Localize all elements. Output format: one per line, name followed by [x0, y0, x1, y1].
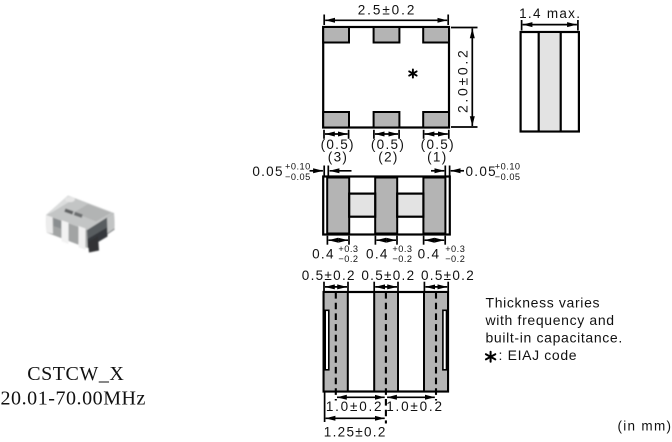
svg-text:0.4: 0.4 [312, 246, 335, 261]
svg-text:0.4: 0.4 [418, 246, 441, 261]
svg-text:+0.3: +0.3 [392, 244, 412, 254]
svg-text:−0.2: −0.2 [338, 254, 358, 264]
svg-text:(1): (1) [427, 149, 447, 164]
svg-text:built-in capacitance.: built-in capacitance. [486, 330, 623, 346]
svg-text:−0.05: −0.05 [285, 172, 311, 182]
svg-text:−0.2: −0.2 [445, 254, 465, 264]
svg-text:0.05: 0.05 [252, 164, 283, 179]
svg-text:0.5±0.2: 0.5±0.2 [302, 268, 356, 283]
svg-text:−0.05: −0.05 [495, 172, 521, 182]
svg-text:2.0±0.2: 2.0±0.2 [455, 48, 471, 114]
svg-text:+0.3: +0.3 [338, 244, 358, 254]
svg-text:1.0±0.2: 1.0±0.2 [326, 399, 384, 414]
svg-text:1.4 max.: 1.4 max. [519, 6, 581, 21]
svg-text:2.5±0.2: 2.5±0.2 [358, 3, 417, 18]
svg-text:+0.10: +0.10 [285, 161, 311, 171]
svg-text:(in mm): (in mm) [617, 419, 672, 434]
svg-text:(2): (2) [378, 149, 398, 164]
svg-text:with frequency and: with frequency and [485, 312, 615, 328]
svg-text:0.4: 0.4 [366, 246, 389, 261]
svg-text:1.25±0.2: 1.25±0.2 [324, 425, 387, 440]
svg-text:1.0±0.2: 1.0±0.2 [386, 399, 444, 414]
svg-text:+0.3: +0.3 [445, 244, 465, 254]
svg-text:0.5±0.2: 0.5±0.2 [421, 268, 475, 283]
svg-text:: EIAJ code: : EIAJ code [499, 347, 578, 363]
svg-text:+0.10: +0.10 [495, 161, 521, 171]
svg-text:0.5±0.2: 0.5±0.2 [361, 268, 415, 283]
svg-text:0.05: 0.05 [466, 164, 497, 179]
svg-text:20.01-70.00MHz: 20.01-70.00MHz [1, 387, 146, 409]
svg-text:(3): (3) [328, 149, 348, 164]
svg-text:CSTCW_X: CSTCW_X [27, 363, 124, 385]
svg-text:Thickness varies: Thickness varies [486, 295, 601, 311]
svg-text:−0.2: −0.2 [392, 254, 412, 264]
